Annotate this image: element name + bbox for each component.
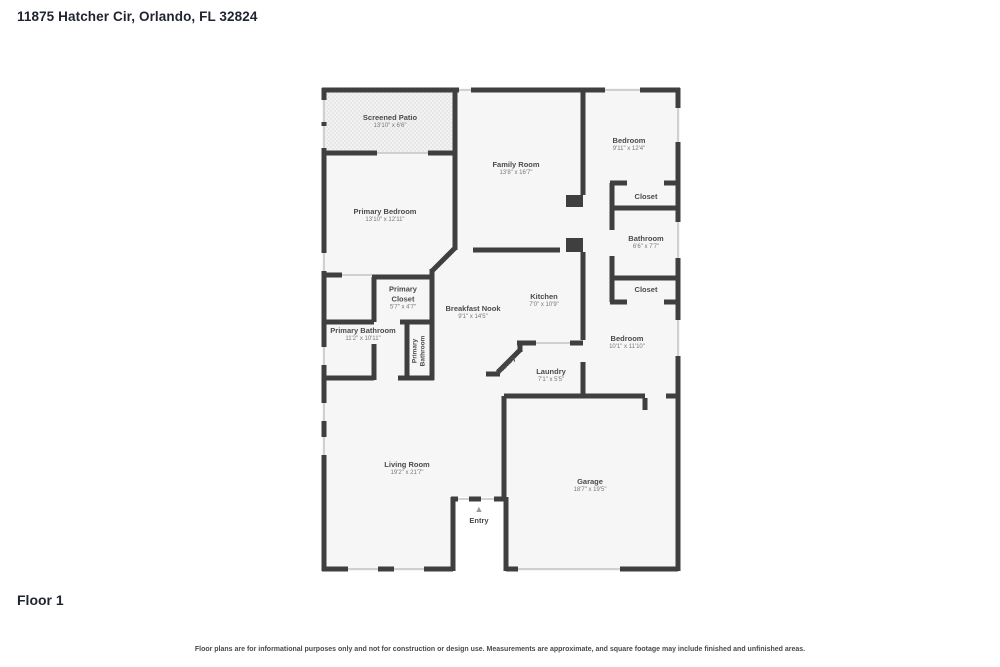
room-label-laundry: Laundry 7'1" x 5'5" (536, 367, 566, 385)
room-label-entry: Entry (469, 516, 488, 526)
room-label-garage: Garage 18'7" x 19'5" (574, 477, 607, 495)
room-label-closet-top-right: Closet (635, 192, 658, 202)
entry-arrow-icon: ▲ (475, 504, 484, 514)
room-label-primary-closet: Primary Closet 5'7" x 4'7" (380, 284, 426, 311)
room-label-primary-bedroom: Primary Bedroom 13'10" x 12'11" (354, 207, 417, 225)
room-label-breakfast-nook: Breakfast Nook 9'1" x 14'5" (445, 304, 500, 322)
room-label-primary-bathroom: Primary Bathroom 11'2" x 10'11" (330, 326, 395, 344)
room-label-primary-bathroom-corridor: Primary Bathroom (412, 327, 429, 375)
disclaimer-text: Floor plans are for informational purpos… (0, 646, 1000, 653)
room-label-family-room: Family Room 13'8" x 16'7" (492, 160, 539, 178)
floor-plan: Screened Patio 13'10" x 6'6" Family Room… (0, 0, 1000, 667)
room-label-closet-mid-right: Closet (635, 285, 658, 295)
room-label-bathroom: Bathroom 6'6" x 7'7" (628, 234, 663, 252)
room-label-screened-patio: Screened Patio 13'10" x 6'6" (363, 113, 417, 131)
room-label-living-room: Living Room 19'2" x 21'7" (384, 460, 429, 478)
room-label-kitchen: Kitchen 7'0" x 10'9" (529, 292, 559, 310)
floor-number-label: Floor 1 (17, 592, 64, 608)
floor-plan-drawing (0, 0, 1000, 667)
room-label-bedroom-right: Bedroom 10'1" x 11'10" (609, 334, 645, 352)
room-label-bedroom-top-right: Bedroom 9'11" x 12'4" (613, 136, 646, 154)
